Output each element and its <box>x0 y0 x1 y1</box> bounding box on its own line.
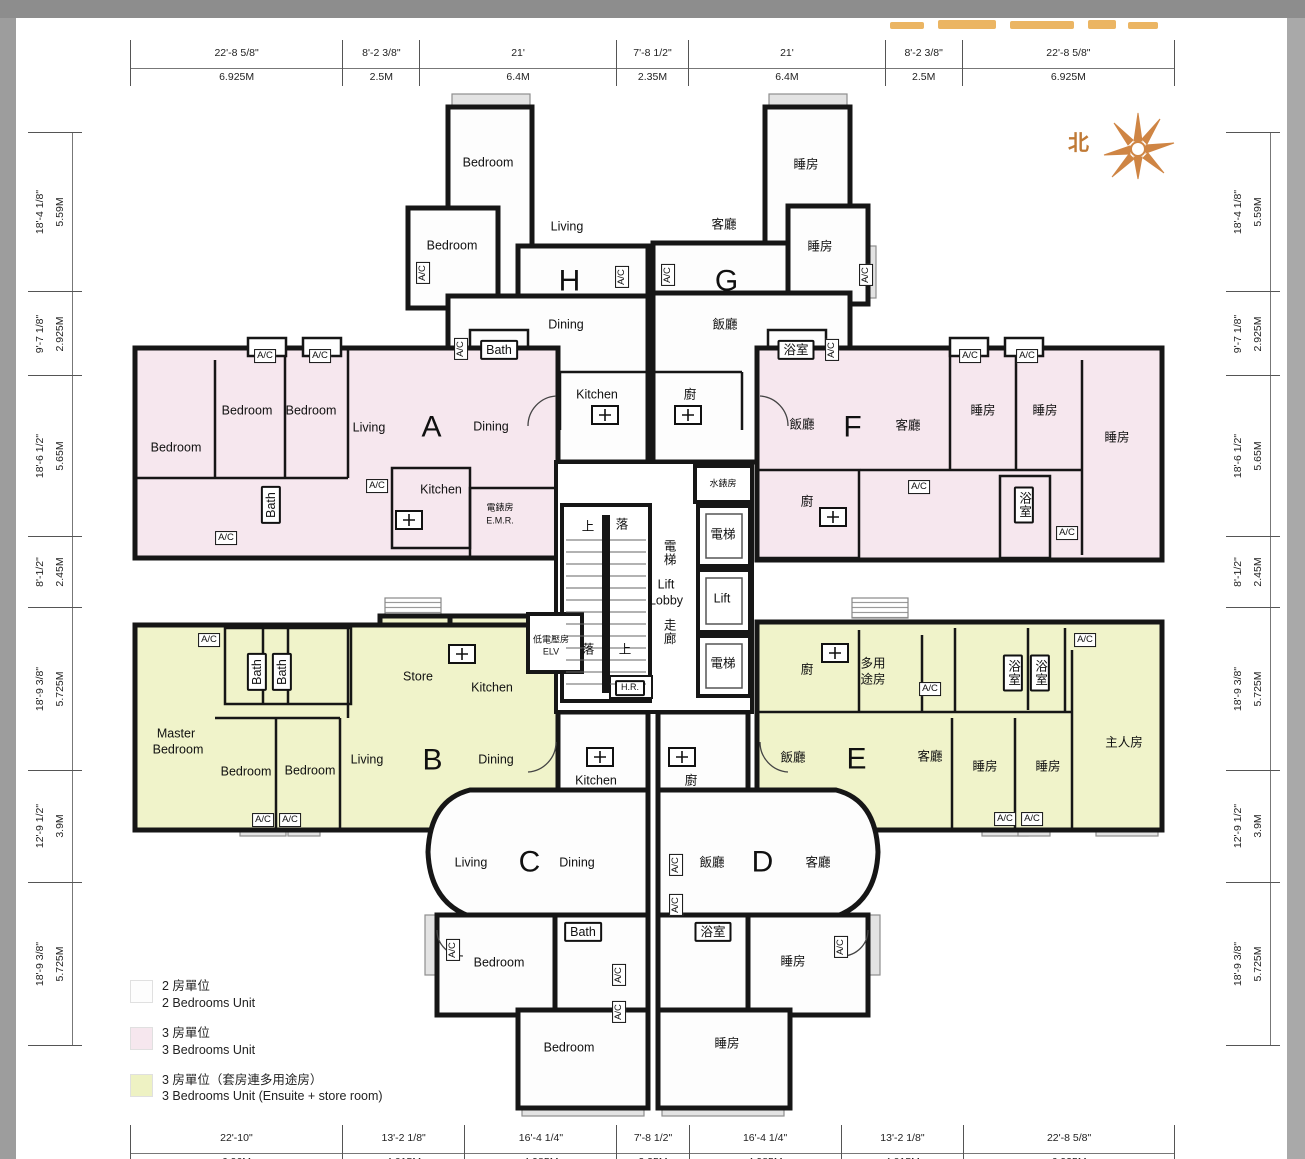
dimension-imperial: 18'-9 3/8" <box>34 942 46 986</box>
dimension-metric: 5.725M <box>1252 946 1264 981</box>
compass-star-icon <box>1050 105 1180 200</box>
dimension-imperial: 9'-7 1/8" <box>1232 315 1244 353</box>
dimension-imperial: 18'-9 3/8" <box>1232 942 1244 986</box>
photo-right-bar <box>1287 18 1305 1159</box>
dimension-segment: 21'6.4M <box>688 40 884 86</box>
dimension-imperial: 22'-8 5/8" <box>964 1132 1174 1144</box>
dimension-segment: 18'-6 1/2"5.65M <box>28 375 82 536</box>
dimension-metric: 6.925M <box>131 71 342 83</box>
dimension-imperial: 22'-10" <box>131 1132 342 1144</box>
dimension-strip-left: 18'-4 1/8"5.59M9'-7 1/8"2.925M18'-6 1/2"… <box>28 132 82 1046</box>
dimension-imperial: 21' <box>689 47 884 59</box>
dimension-imperial: 12'-9 1/2" <box>1232 804 1244 848</box>
dimension-imperial: 21' <box>420 47 615 59</box>
photo-top-bar <box>0 0 1305 18</box>
dimension-strip-right: 18'-4 1/8"5.59M9'-7 1/8"2.925M18'-6 1/2"… <box>1226 132 1280 1046</box>
dimension-strip-top: 22'-8 5/8"6.925M8'-2 3/8"2.5M21'6.4M7'-8… <box>130 40 1175 86</box>
dimension-imperial: 12'-9 1/2" <box>34 804 46 848</box>
legend-swatch <box>130 1027 153 1050</box>
dimension-metric: 5.725M <box>54 672 66 707</box>
dimension-metric: 6.4M <box>420 71 615 83</box>
north-indicator: 北 <box>1050 105 1180 200</box>
dimension-metric: 2.45M <box>1252 558 1264 587</box>
legend-item: 3 房單位（套房連多用途房）3 Bedrooms Unit (Ensuite +… <box>130 1072 383 1106</box>
dimension-imperial: 22'-8 5/8" <box>963 47 1174 59</box>
legend: 2 房單位2 Bedrooms Unit3 房單位3 Bedrooms Unit… <box>130 978 383 1118</box>
dimension-segment: 8'-1/2"2.45M <box>1226 536 1280 606</box>
dimension-segment: 21'6.4M <box>419 40 615 86</box>
dimension-segment: 18'-4 1/8"5.59M <box>1226 132 1280 291</box>
dimension-metric: 5.725M <box>54 946 66 981</box>
dimension-imperial: 22'-8 5/8" <box>131 47 342 59</box>
dimension-metric: 5.59M <box>54 198 66 227</box>
dimension-metric: 5.65M <box>54 442 66 471</box>
dimension-imperial: 8'-1/2" <box>34 557 46 587</box>
dimension-imperial: 8'-2 3/8" <box>343 47 419 59</box>
dimension-metric: 2.925M <box>1252 316 1264 351</box>
dimension-segment: 7'-8 1/2"2.35M <box>616 1125 688 1159</box>
dimension-segment: 18'-9 3/8"5.725M <box>1226 882 1280 1046</box>
dimension-imperial: 13'-2 1/8" <box>842 1132 964 1144</box>
dimension-metric: 6.4M <box>689 71 884 83</box>
dimension-imperial: 16'-4 1/4" <box>690 1132 841 1144</box>
photo-left-bar <box>0 18 16 1159</box>
floor-plan-page: 22'-8 5/8"6.925M8'-2 3/8"2.5M21'6.4M7'-8… <box>0 0 1305 1159</box>
dimension-imperial: 18'-9 3/8" <box>34 667 46 711</box>
dimension-segment: 9'-7 1/8"2.925M <box>28 291 82 375</box>
dimension-segment: 8'-2 3/8"2.5M <box>342 40 419 86</box>
dimension-segment: 16'-4 1/4"4.985M <box>689 1125 841 1159</box>
dimension-segment: 9'-7 1/8"2.925M <box>1226 291 1280 375</box>
legend-label-en: 3 Bedrooms Unit (Ensuite + store room) <box>162 1088 383 1105</box>
dimension-metric: 2.5M <box>886 71 962 83</box>
legend-label-en: 3 Bedrooms Unit <box>162 1042 255 1059</box>
dimension-segment: 16'-4 1/4"4.985M <box>464 1125 616 1159</box>
legend-swatch <box>130 980 153 1003</box>
dimension-strip-bottom: 22'-10"6.96M13'-2 1/8"4.015M16'-4 1/4"4.… <box>130 1125 1175 1159</box>
dimension-segment: 8'-2 3/8"2.5M <box>885 40 962 86</box>
dimension-segment: 22'-8 5/8"6.925M <box>963 1125 1175 1159</box>
dimension-segment: 18'-9 3/8"5.725M <box>28 607 82 770</box>
dimension-imperial: 8'-1/2" <box>1232 557 1244 587</box>
dimension-segment: 22'-8 5/8"6.925M <box>962 40 1175 86</box>
legend-item: 3 房單位3 Bedrooms Unit <box>130 1025 383 1059</box>
dimension-imperial: 7'-8 1/2" <box>617 1132 688 1144</box>
core-walls <box>528 462 752 712</box>
dimension-metric: 3.9M <box>1252 815 1264 838</box>
dimension-imperial: 13'-2 1/8" <box>343 1132 465 1144</box>
dimension-segment: 12'-9 1/2"3.9M <box>1226 770 1280 882</box>
dimension-metric: 2.925M <box>54 316 66 351</box>
dimension-segment: 8'-1/2"2.45M <box>28 536 82 606</box>
dimension-imperial: 18'-4 1/8" <box>1232 190 1244 234</box>
dimension-metric: 3.9M <box>54 815 66 838</box>
dimension-segment: 18'-9 3/8"5.725M <box>1226 607 1280 770</box>
legend-label-zh: 3 房單位 <box>162 1025 255 1042</box>
dimension-metric: 2.5M <box>343 71 419 83</box>
dimension-imperial: 18'-6 1/2" <box>1232 434 1244 478</box>
dimension-imperial: 18'-6 1/2" <box>34 434 46 478</box>
dimension-segment: 22'-8 5/8"6.925M <box>130 40 342 86</box>
legend-label-zh: 3 房單位（套房連多用途房） <box>162 1072 383 1089</box>
dimension-imperial: 16'-4 1/4" <box>465 1132 616 1144</box>
legend-label-zh: 2 房單位 <box>162 978 255 995</box>
legend-label-en: 2 Bedrooms Unit <box>162 995 255 1012</box>
dimension-metric: 5.725M <box>1252 672 1264 707</box>
dimension-imperial: 18'-4 1/8" <box>34 190 46 234</box>
legend-item: 2 房單位2 Bedrooms Unit <box>130 978 383 1012</box>
dimension-imperial: 9'-7 1/8" <box>34 315 46 353</box>
dimension-imperial: 8'-2 3/8" <box>886 47 962 59</box>
dimension-metric: 2.35M <box>617 71 689 83</box>
dimension-imperial: 18'-9 3/8" <box>1232 667 1244 711</box>
dimension-segment: 13'-2 1/8"4.015M <box>841 1125 964 1159</box>
dimension-metric: 6.925M <box>963 71 1174 83</box>
dimension-segment: 12'-9 1/2"3.9M <box>28 770 82 882</box>
dimension-segment: 22'-10"6.96M <box>130 1125 342 1159</box>
dimension-segment: 18'-9 3/8"5.725M <box>28 882 82 1046</box>
legend-swatch <box>130 1074 153 1097</box>
dimension-segment: 18'-4 1/8"5.59M <box>28 132 82 291</box>
dimension-segment: 18'-6 1/2"5.65M <box>1226 375 1280 536</box>
dimension-imperial: 7'-8 1/2" <box>617 47 689 59</box>
dimension-segment: 7'-8 1/2"2.35M <box>616 40 689 86</box>
dimension-metric: 5.65M <box>1252 442 1264 471</box>
dimension-metric: 2.45M <box>54 558 66 587</box>
dimension-segment: 13'-2 1/8"4.015M <box>342 1125 465 1159</box>
dimension-metric: 5.59M <box>1252 198 1264 227</box>
